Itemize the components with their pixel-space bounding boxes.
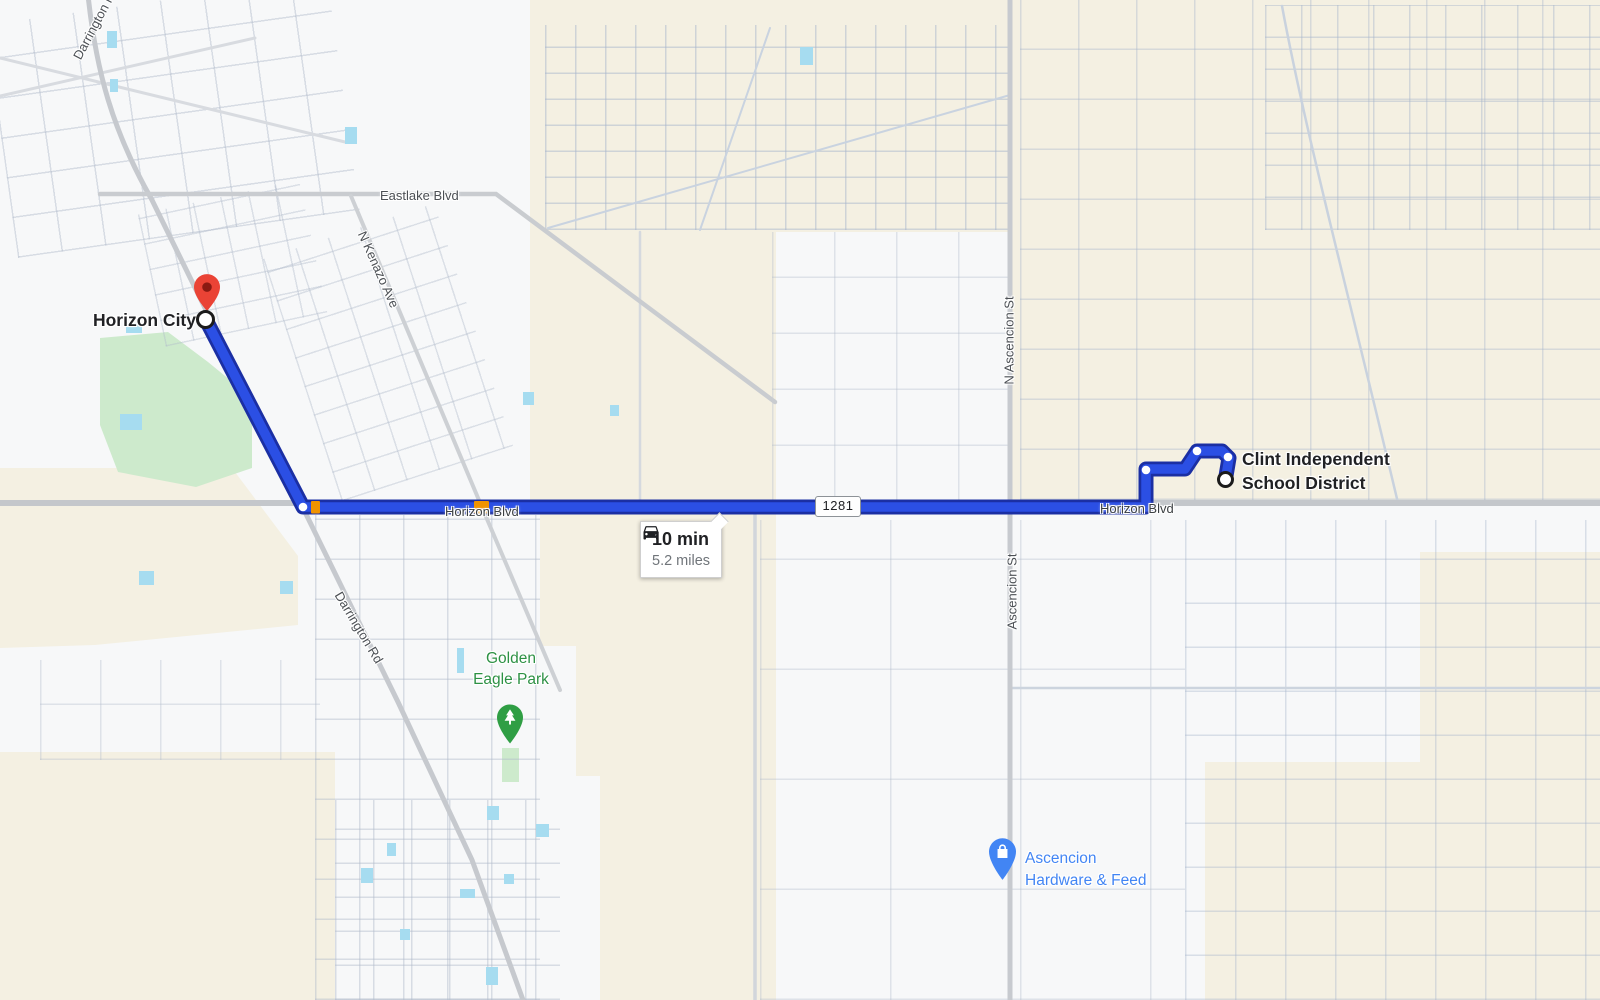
road-label-n-ascencion: N Ascencion St: [1002, 291, 1017, 391]
destination-label-line2: School District: [1242, 471, 1390, 495]
route-casing: [206, 320, 1229, 507]
route-tooltip[interactable]: 10 min 5.2 miles: [640, 521, 722, 578]
origin-place-label[interactable]: Horizon City: [56, 308, 196, 332]
road-minor: [0, 58, 345, 142]
store-poi-label[interactable]: Ascencion Hardware & Feed: [1025, 848, 1146, 891]
road-label-ascencion: Ascencion St: [1005, 549, 1020, 635]
road-minor: [1282, 6, 1398, 503]
shopping-bag-pin-icon[interactable]: [989, 838, 1016, 880]
driving-route[interactable]: [206, 320, 1229, 507]
route-line: [206, 320, 1229, 507]
origin-ring-icon[interactable]: [196, 310, 215, 329]
map-canvas[interactable]: Eastlake Blvd N Kenazo Ave Horizon Blvd …: [0, 0, 1600, 1000]
destination-ring-icon[interactable]: [1217, 471, 1234, 488]
park-poi-label[interactable]: Golden Eagle Park: [441, 648, 581, 690]
road-minor: [548, 95, 1010, 228]
road-label-horizon-east: Horizon Blvd: [1100, 501, 1174, 516]
road-minor: [700, 28, 770, 230]
roads-route-layer: [0, 0, 1600, 1000]
destination-place-label[interactable]: Clint Independent School District: [1242, 447, 1390, 495]
route-distance: 5.2 miles: [652, 553, 710, 569]
car-icon: [641, 522, 661, 542]
store-label-line1: Ascencion: [1025, 848, 1146, 870]
road-label-horizon-west: Horizon Blvd: [445, 504, 519, 519]
park-label-line2: Eagle Park: [441, 669, 581, 690]
red-pin-icon[interactable]: [194, 273, 220, 312]
route-shield-1281: 1281: [815, 496, 861, 517]
destination-label-line1: Clint Independent: [1242, 447, 1390, 471]
park-label-line1: Golden: [441, 648, 581, 669]
road-label-eastlake: Eastlake Blvd: [380, 188, 459, 203]
tree-pin-icon[interactable]: [497, 704, 523, 744]
store-label-line2: Hardware & Feed: [1025, 870, 1146, 892]
